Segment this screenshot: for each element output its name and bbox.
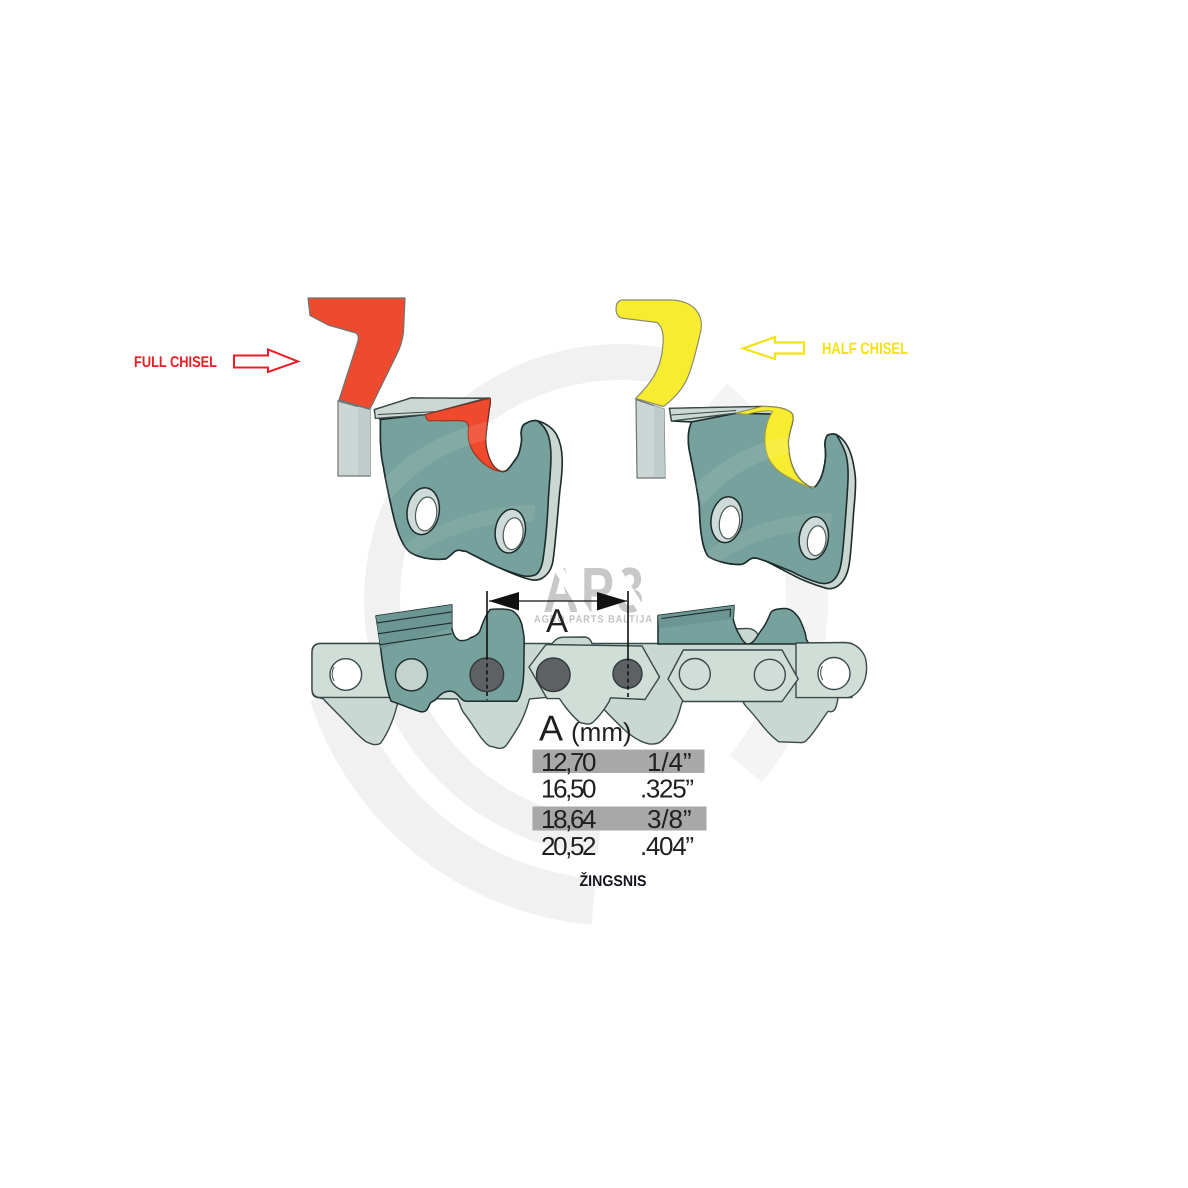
svg-text:HALF CHISEL: HALF CHISEL (822, 340, 908, 358)
svg-text:20,52: 20,52 (541, 831, 597, 861)
svg-text:.404”: .404” (640, 831, 694, 861)
svg-text:3/8”: 3/8” (647, 804, 692, 834)
svg-text:16,50: 16,50 (541, 773, 597, 803)
svg-text:.325”: .325” (640, 773, 694, 803)
svg-text:FULL CHISEL: FULL CHISEL (134, 354, 217, 371)
svg-text:A: A (546, 602, 568, 639)
svg-text:ŽINGSNIS: ŽINGSNIS (580, 872, 647, 890)
svg-text:(mm): (mm) (571, 717, 632, 747)
svg-text:18,64: 18,64 (541, 804, 597, 834)
svg-text:A: A (539, 708, 563, 749)
